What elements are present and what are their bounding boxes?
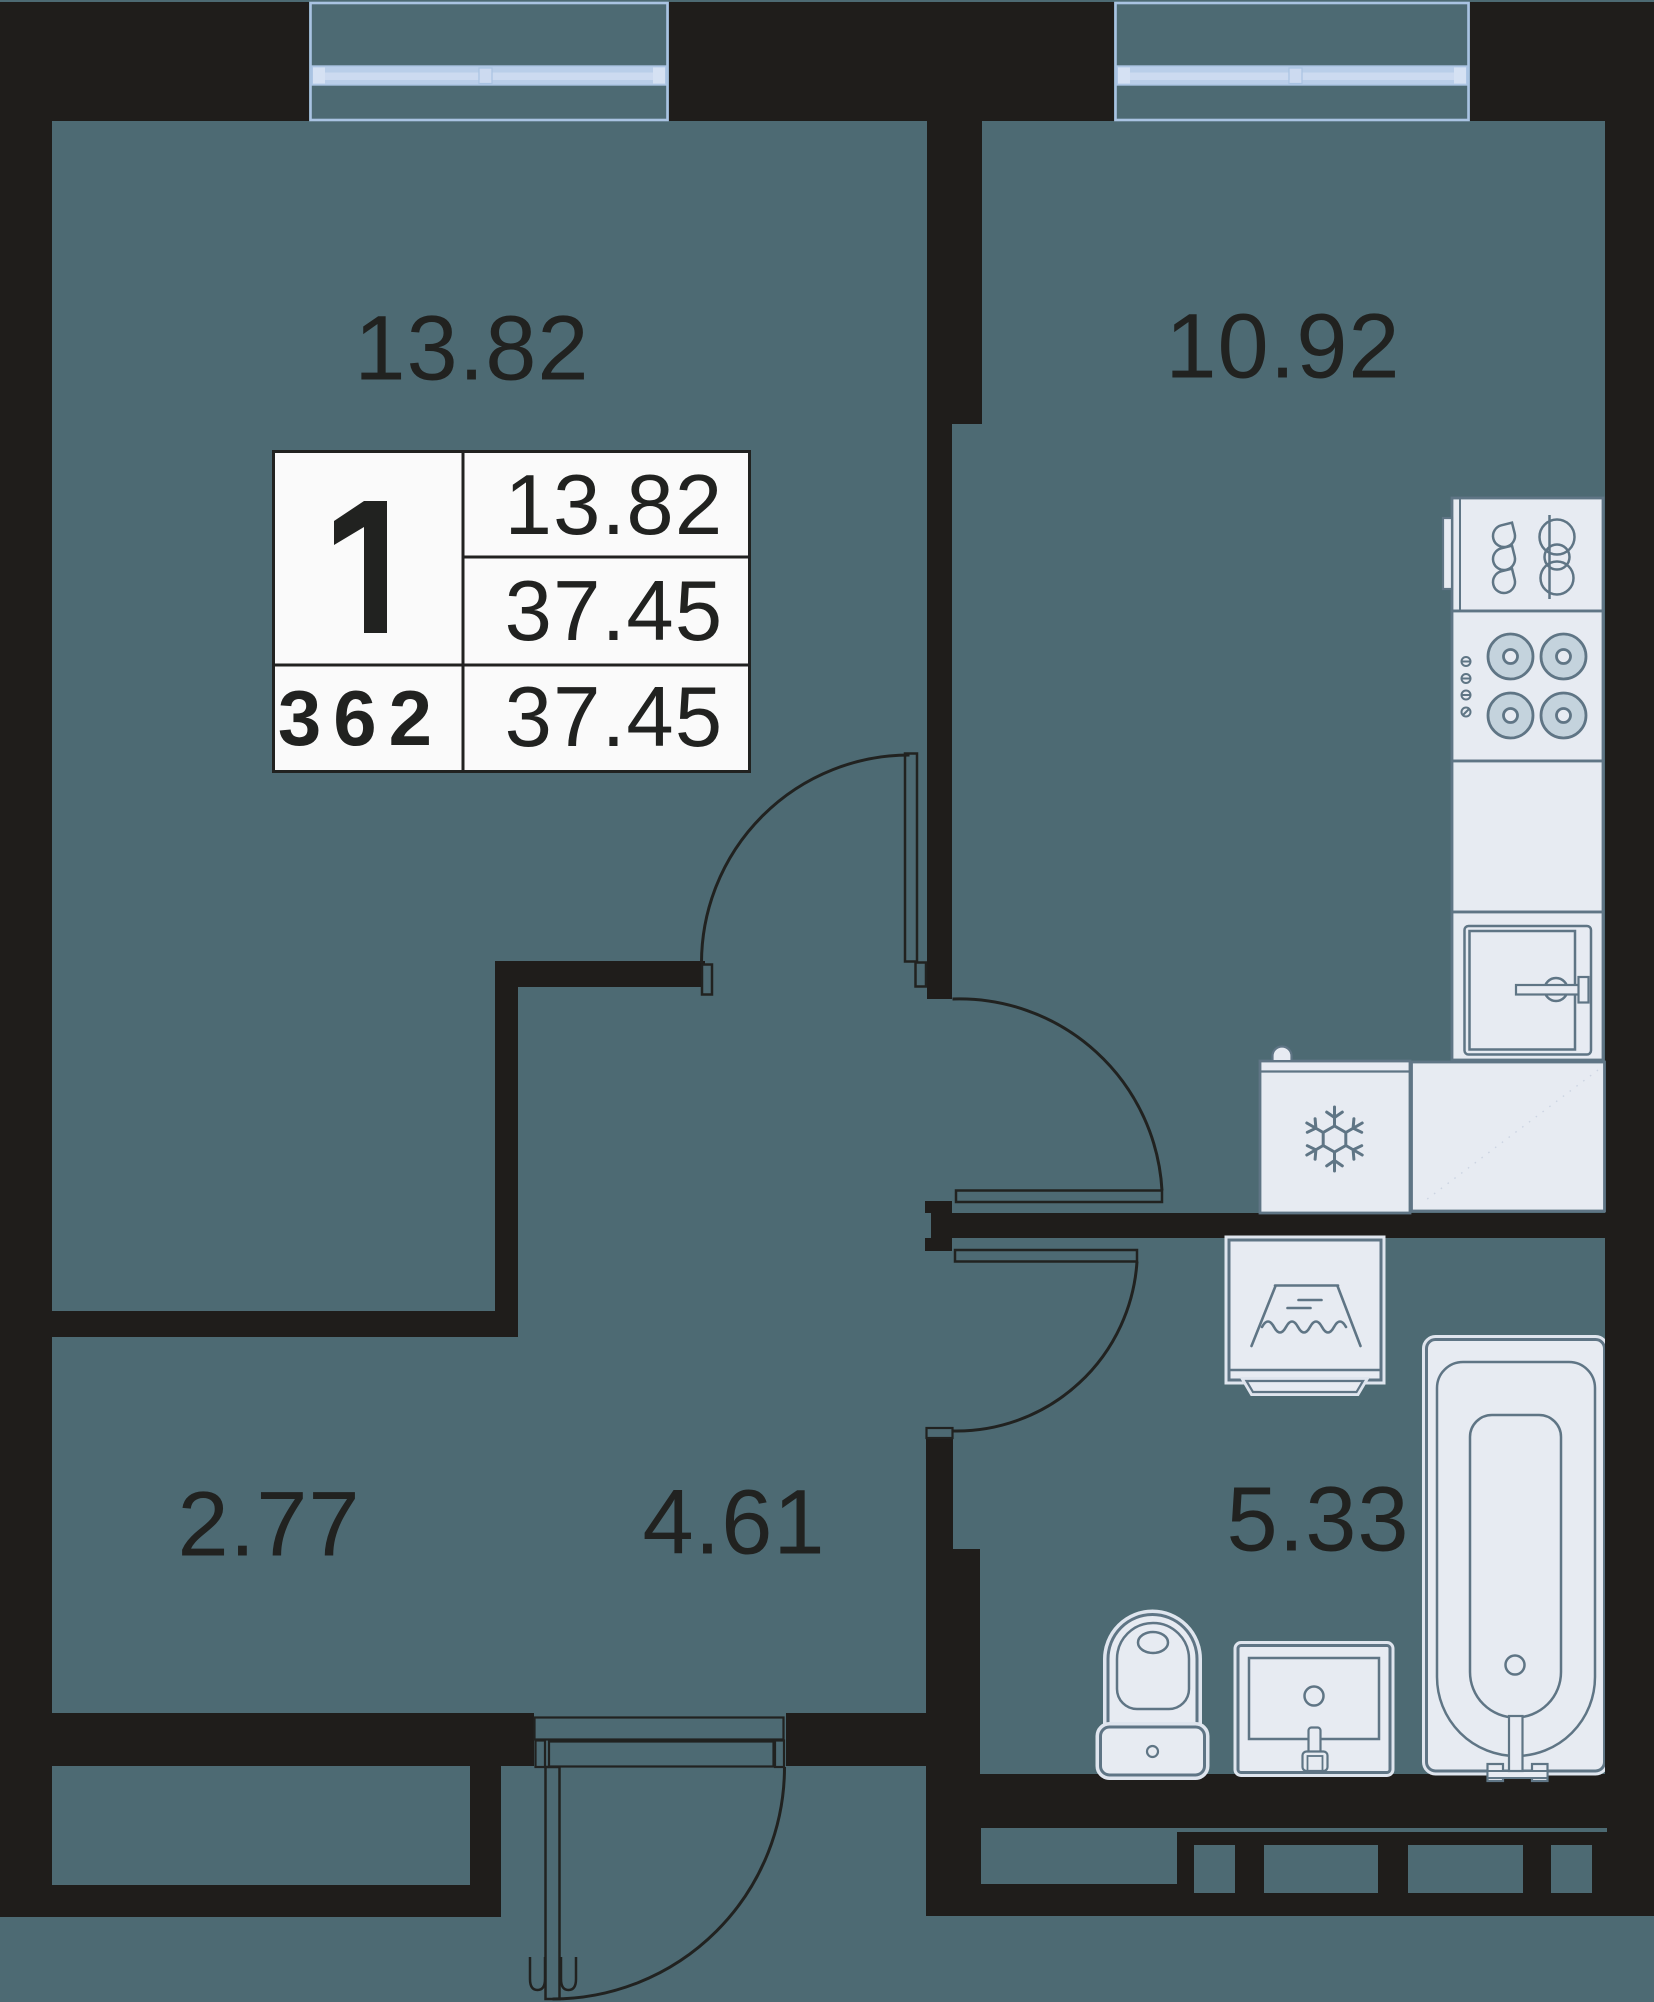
svg-text:10.92: 10.92: [1165, 296, 1400, 398]
svg-text:13.82: 13.82: [505, 458, 724, 553]
svg-text:5.33: 5.33: [1226, 1469, 1409, 1571]
svg-text:2.77: 2.77: [177, 1474, 360, 1576]
svg-text:37.45: 37.45: [505, 670, 724, 765]
svg-text:37.45: 37.45: [505, 564, 724, 659]
svg-text:4.61: 4.61: [642, 1472, 825, 1574]
svg-text:362: 362: [278, 674, 444, 762]
svg-text:13.82: 13.82: [354, 298, 589, 400]
